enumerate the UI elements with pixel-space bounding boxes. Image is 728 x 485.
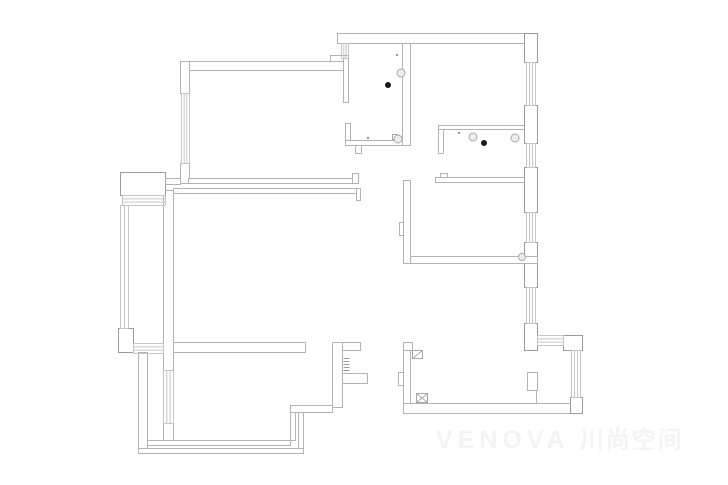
window-symbol: [164, 371, 174, 424]
window-symbol: [527, 144, 536, 168]
ceiling-lamp-circle: [511, 134, 519, 142]
window-symbol: [572, 351, 581, 398]
wall-segment: [166, 179, 181, 185]
ceiling-lamp-circle: [519, 254, 526, 261]
wall-segment: [436, 178, 528, 183]
ceiling-lamp-circle: [397, 69, 405, 77]
window-symbol: [527, 288, 536, 324]
wall-segment: [525, 106, 538, 144]
window-symbol: [123, 196, 166, 206]
wall-segment: [174, 189, 361, 194]
wall-segment: [181, 62, 348, 71]
windows-layer: [121, 44, 581, 424]
wall-segment: [291, 411, 296, 441]
wall-segment: [164, 191, 174, 371]
wall-segment: [164, 424, 174, 443]
wall-segment: [404, 181, 411, 264]
wall-segment: [139, 353, 148, 454]
fixtures-layer: [367, 54, 526, 261]
wall-segment: [439, 126, 527, 130]
wall-segment: [404, 404, 583, 414]
window-symbol: [527, 63, 536, 106]
wall-segment: [525, 243, 538, 288]
box-diagonal: [413, 351, 423, 359]
wall-segment: [356, 146, 362, 154]
wall-segment: [299, 413, 304, 449]
crossed-box-symbol: [417, 394, 428, 403]
watermark-brand-text: VENOVA: [436, 426, 570, 454]
wall-segment: [148, 441, 291, 446]
wall-segment: [525, 324, 538, 351]
wall-segment: [343, 343, 361, 351]
wall-segment: [357, 189, 361, 201]
walls-layer: [119, 34, 583, 454]
wall-segment: [343, 374, 368, 384]
door-hatch-symbol: [344, 359, 350, 371]
floor-plan-canvas: VENOVA川尚空间: [0, 0, 728, 485]
tiny-marker-dot: [396, 54, 398, 56]
wall-segment: [121, 173, 166, 196]
wall-segment: [338, 34, 538, 44]
wall-segment: [525, 34, 538, 63]
wall-segment: [189, 179, 353, 184]
wall-segment: [439, 130, 444, 154]
wall-segment: [528, 373, 538, 391]
window-symbol: [182, 94, 190, 164]
door-box-symbol: [413, 351, 423, 359]
light-point-dot: [481, 140, 487, 146]
wall-segment: [291, 406, 333, 413]
watermark: VENOVA川尚空间: [436, 427, 728, 454]
wall-segment: [119, 329, 134, 353]
wall-segment: [346, 124, 351, 141]
wall-segment: [571, 398, 583, 414]
wall-segment: [353, 174, 359, 184]
wall-segment: [181, 62, 190, 94]
wall-segment: [344, 59, 349, 103]
window-symbol: [121, 206, 129, 329]
watermark-cjk-text: 川尚空间: [580, 427, 684, 454]
ceiling-lamp-circle: [469, 133, 477, 141]
tiny-marker-dot: [458, 132, 460, 134]
wall-segment: [333, 343, 343, 408]
wall-segment: [400, 223, 404, 236]
misc-lines-layer: [344, 359, 537, 404]
wall-segment: [403, 44, 411, 146]
wall-segment: [564, 336, 583, 351]
tiny-marker-dot: [367, 137, 369, 139]
window-symbol: [538, 336, 564, 346]
wall-segment: [525, 168, 538, 213]
wall-segment: [139, 449, 304, 454]
wall-segment: [399, 373, 404, 386]
light-point-dot: [385, 82, 391, 88]
window-symbol: [527, 213, 536, 243]
wall-segment: [441, 174, 448, 178]
ceiling-lamp-circle: [394, 135, 402, 143]
wall-segment: [174, 343, 306, 353]
floor-plan-svg: [0, 0, 728, 485]
wall-segment: [404, 343, 413, 351]
